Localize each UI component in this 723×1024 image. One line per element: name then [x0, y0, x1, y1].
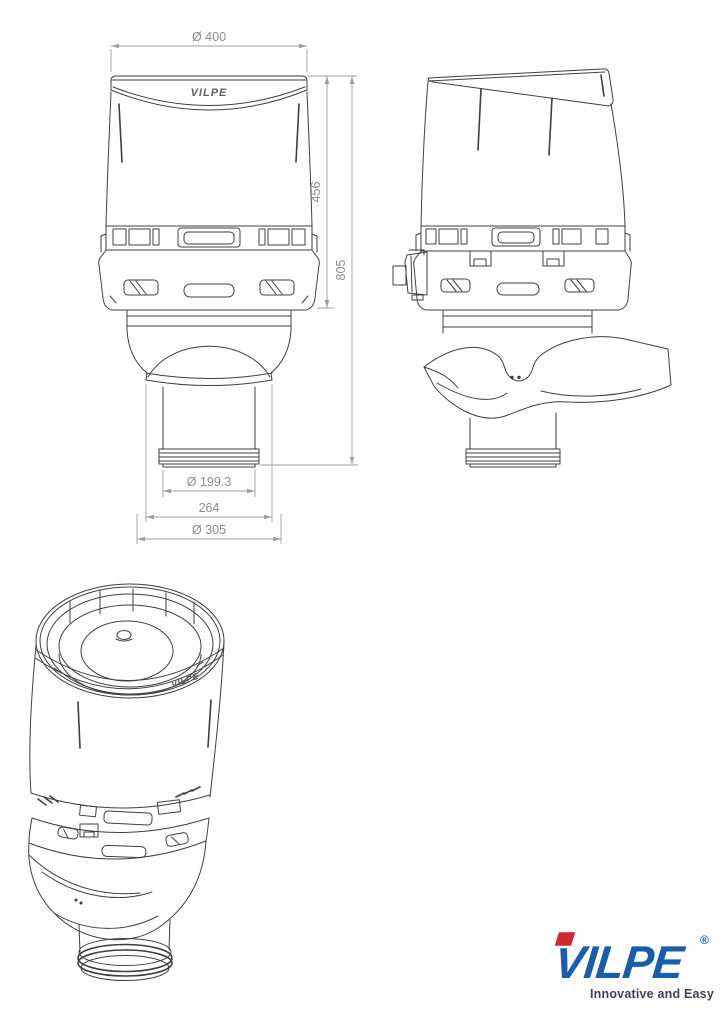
dim-total-height-label: 805	[334, 260, 348, 281]
roof-skirt-side	[424, 337, 671, 418]
skirt-dot	[517, 376, 520, 379]
side-view	[393, 69, 671, 467]
cap-embossed-logo: VILPE	[191, 87, 228, 99]
front-view: VILPE	[99, 30, 358, 544]
drawing-svg: VILPE	[0, 0, 723, 1024]
cap-hood-side	[428, 69, 613, 155]
iso-body	[30, 643, 224, 797]
iso-roof-skirt	[29, 841, 206, 940]
flare-band	[99, 250, 320, 310]
dim-outlet-width-label: 264	[199, 501, 220, 515]
dimension-insulation-diameter: Ø 305	[137, 514, 281, 544]
flare-band-side	[414, 251, 632, 310]
dim-pipe-diameter-label: Ø 199.3	[187, 475, 232, 489]
isometric-view: VILPE	[29, 584, 224, 981]
cap-body-side	[421, 81, 625, 226]
dimension-cap-height: 456	[308, 76, 357, 308]
latch-band-side	[416, 226, 630, 266]
skirt-dot	[510, 376, 513, 379]
cap-body	[106, 92, 312, 226]
dimension-top-diameter: Ø 400	[111, 30, 307, 72]
registered-mark: ®	[700, 933, 709, 947]
iso-flare-band	[29, 818, 209, 859]
neck-cylinder-side	[443, 310, 592, 333]
skirt-dot	[75, 899, 78, 902]
dim-cap-height-label: 456	[309, 182, 323, 203]
deflector-bell	[127, 330, 291, 386]
dim-top-diameter-label: Ø 400	[192, 30, 226, 44]
outlet-pipe-side	[466, 413, 560, 467]
neck-cylinder	[127, 310, 291, 330]
skirt-dot	[80, 902, 83, 905]
logo-red-accent	[553, 931, 577, 947]
technical-drawing-page: VILPE	[0, 0, 723, 1024]
iso-latch-band	[31, 787, 210, 837]
iso-pipe-rings	[78, 920, 172, 981]
brand-logo: VILPE ® Innovative and Easy	[552, 931, 714, 1001]
dimension-pipe-diameter: Ø 199.3	[163, 470, 255, 497]
latch-band	[101, 226, 317, 252]
vilpe-tagline: Innovative and Easy	[590, 987, 714, 1001]
outlet-pipe	[159, 387, 259, 467]
dim-insulation-diameter-label: Ø 305	[192, 523, 226, 537]
side-bracket	[393, 250, 427, 300]
